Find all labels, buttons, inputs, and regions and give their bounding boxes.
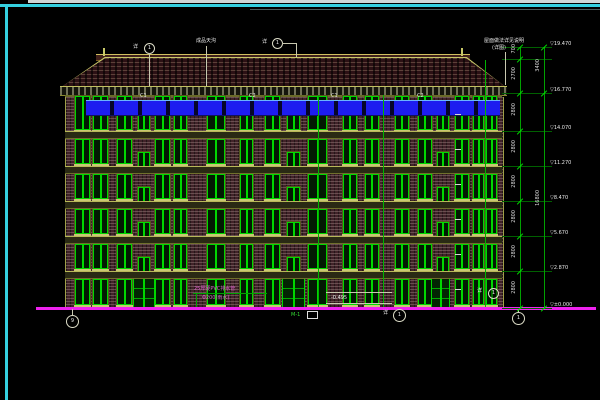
- window: [117, 244, 132, 269]
- landing-level-mark: [455, 114, 461, 115]
- pvc-note-underline: [193, 293, 267, 294]
- window: [418, 244, 432, 269]
- ridge-finial-right: [461, 48, 463, 56]
- level-marker: ▽8.470: [550, 195, 568, 201]
- outdoor-level-note: -0.495: [331, 295, 347, 301]
- window: [117, 209, 132, 234]
- mid-callout-side: 详: [383, 310, 388, 316]
- window: [174, 139, 187, 164]
- level-marker: ▽11.270: [550, 160, 571, 166]
- landing-level-mark: [455, 219, 461, 220]
- window: [117, 174, 132, 199]
- landing-level-mark: [455, 289, 461, 290]
- window: [455, 174, 469, 199]
- window: [240, 209, 253, 234]
- window: [395, 209, 409, 234]
- ground-note-bracket-bottom: [326, 303, 392, 304]
- window: [418, 139, 432, 164]
- window: [473, 244, 484, 269]
- roof-note-right-line2: (详图): [492, 45, 506, 51]
- window: [174, 174, 187, 199]
- entrance-step-box: [307, 311, 318, 319]
- ridge-callout-leader-h: [282, 43, 296, 44]
- window: [155, 209, 170, 234]
- window: [486, 244, 497, 269]
- roof-gutter-note: 成品天沟: [196, 38, 216, 44]
- window: [455, 209, 469, 234]
- window: [240, 244, 253, 269]
- floor-slab-band: [65, 201, 502, 209]
- downspout-pipe: [485, 60, 486, 307]
- left-callout-leader: [149, 53, 150, 86]
- window: [207, 279, 225, 305]
- window: [117, 279, 132, 305]
- window: [207, 244, 225, 269]
- level-marker: ▽±0.000: [550, 302, 572, 308]
- window: [174, 244, 187, 269]
- landing-level-mark: [455, 184, 461, 185]
- window: [93, 279, 108, 305]
- floor-slab-band: [65, 166, 502, 174]
- window: [486, 174, 497, 199]
- elevation-drawing: 成品天沟 详 1 详 1 屋面做法详见说明 (详图) 25厚硬PVC排水管 Φ2…: [0, 0, 600, 400]
- window: [455, 279, 469, 305]
- dim-text: 2800: [512, 210, 517, 223]
- window: [486, 209, 497, 234]
- cad-elevation-screenshot: 成品天沟 详 1 详 1 屋面做法详见说明 (详图) 25厚硬PVC排水管 Φ2…: [0, 0, 600, 400]
- window: [155, 139, 170, 164]
- window: [395, 244, 409, 269]
- window: [343, 209, 357, 234]
- window: [486, 139, 497, 164]
- window: [343, 174, 357, 199]
- window: [418, 279, 432, 305]
- entrance-door-label: M-1: [291, 312, 300, 318]
- ridge-callout-leader-v: [296, 43, 297, 57]
- level-marker: ▽5.670: [550, 230, 568, 236]
- window: [473, 139, 484, 164]
- window: [93, 174, 108, 199]
- axis-bubble-right: 1: [512, 312, 525, 325]
- window-type-label: C2: [417, 93, 424, 99]
- window: [174, 209, 187, 234]
- window: [117, 139, 132, 164]
- roof-slope: [60, 57, 507, 88]
- level-marker: ▽16.770: [550, 87, 571, 93]
- dim-text: 2800: [512, 281, 517, 294]
- gutter-note-leader: [206, 46, 207, 86]
- window: [418, 174, 432, 199]
- dim-text: 2800: [512, 140, 517, 153]
- window: [418, 209, 432, 234]
- level-marker: ▽2.870: [550, 265, 568, 271]
- window: [240, 279, 253, 305]
- window: [207, 139, 225, 164]
- ground-note-bracket-top: [326, 292, 392, 293]
- window: [265, 244, 280, 269]
- window: [473, 209, 484, 234]
- window: [365, 174, 379, 199]
- window: [365, 209, 379, 234]
- downspout-pipe: [318, 95, 319, 307]
- dim-text: 2800: [512, 175, 517, 188]
- window: [395, 174, 409, 199]
- level-marker: ▽19.470: [550, 41, 571, 47]
- landing-level-mark: [455, 149, 461, 150]
- window: [155, 279, 170, 305]
- window: [343, 244, 357, 269]
- window: [395, 279, 409, 305]
- eave-callout-side: 详: [477, 288, 482, 294]
- window: [265, 279, 280, 305]
- downspout-pipe: [383, 95, 384, 307]
- window: [75, 209, 90, 234]
- roof-note-right-line1: 屋面做法详见说明: [484, 38, 524, 44]
- window: [75, 174, 90, 199]
- window: [395, 139, 409, 164]
- dim-line-2: [544, 47, 545, 308]
- dim-text: 2700: [512, 67, 517, 80]
- pvc-note-leader: [196, 294, 197, 307]
- eave-detail-bubble: 1: [488, 288, 499, 299]
- window: [240, 139, 253, 164]
- ridge-callout-side: 详: [262, 39, 267, 45]
- landing-level-mark: [455, 254, 461, 255]
- floor-slab-band: [65, 236, 502, 244]
- roof-note-leader: [505, 52, 506, 85]
- dim-total-text: 16800: [536, 190, 541, 206]
- window: [455, 244, 469, 269]
- window: [365, 244, 379, 269]
- window: [365, 139, 379, 164]
- window: [343, 139, 357, 164]
- left-callout-side: 详: [133, 44, 138, 50]
- window: [207, 209, 225, 234]
- window: [265, 209, 280, 234]
- window: [265, 174, 280, 199]
- dim-text: 2800: [512, 245, 517, 258]
- window: [75, 244, 90, 269]
- window: [93, 139, 108, 164]
- window: [93, 244, 108, 269]
- axis-bubble-left: 9: [66, 315, 79, 328]
- level-marker: ▽14.070: [550, 125, 571, 131]
- dim-total-text: 3400: [536, 59, 541, 72]
- window: [93, 209, 108, 234]
- pvc-drain-note-line1: 25厚硬PVC排水管: [194, 286, 235, 292]
- window: [155, 174, 170, 199]
- window: [75, 139, 90, 164]
- window-type-label: C2: [249, 93, 256, 99]
- dim-text: 2800: [512, 103, 517, 116]
- floor-slab-band: [65, 131, 502, 139]
- floor-slab-band: [65, 271, 502, 279]
- window: [155, 244, 170, 269]
- window: [473, 174, 484, 199]
- roof-tile-hatch: [61, 58, 506, 87]
- dim-text: 700: [512, 44, 517, 54]
- window: [240, 174, 253, 199]
- window-type-label: C1: [140, 93, 147, 99]
- window: [265, 139, 280, 164]
- mid-detail-bubble: 1: [393, 309, 406, 322]
- ridge-finial-left: [103, 48, 105, 56]
- window: [207, 174, 225, 199]
- window: [174, 279, 187, 305]
- window: [455, 139, 469, 164]
- window: [75, 279, 90, 305]
- pvc-drain-note-line2: Φ200(雨水): [202, 295, 229, 301]
- window-type-label: C1: [331, 93, 338, 99]
- balcony-rail-band: [86, 100, 500, 116]
